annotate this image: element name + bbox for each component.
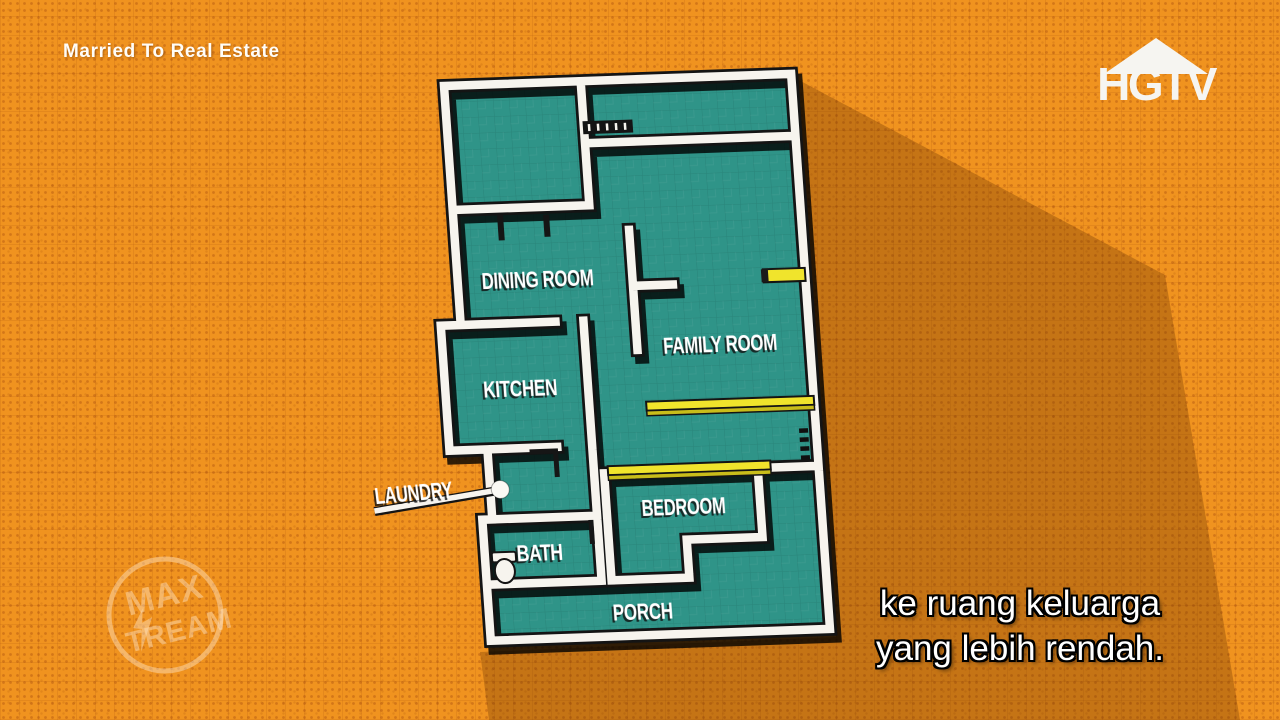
room-label-family: FAMILY ROOM — [662, 329, 778, 359]
tv-frame: Married To Real Estate — [0, 0, 1280, 720]
highlighted-window — [761, 268, 806, 283]
room-label-dining: DINING ROOM — [481, 264, 595, 294]
subtitle-line2: yang lebih rendah. — [800, 626, 1240, 671]
room-label-bath: BATH — [516, 539, 564, 567]
subtitle-block: ke ruang keluarga yang lebih rendah. — [800, 581, 1240, 671]
room-label-bedroom: BEDROOM — [641, 492, 727, 521]
maxstream-watermark: MAX TREAM — [95, 545, 235, 685]
hgtv-logo: HGTV — [1085, 30, 1230, 110]
hgtv-logo-text: HGTV — [1097, 58, 1218, 110]
room-label-kitchen: KITCHEN — [482, 374, 558, 403]
subtitle-line1: ke ruang keluarga — [800, 581, 1240, 626]
room-label-porch: PORCH — [612, 597, 674, 625]
window-icon — [582, 120, 633, 135]
